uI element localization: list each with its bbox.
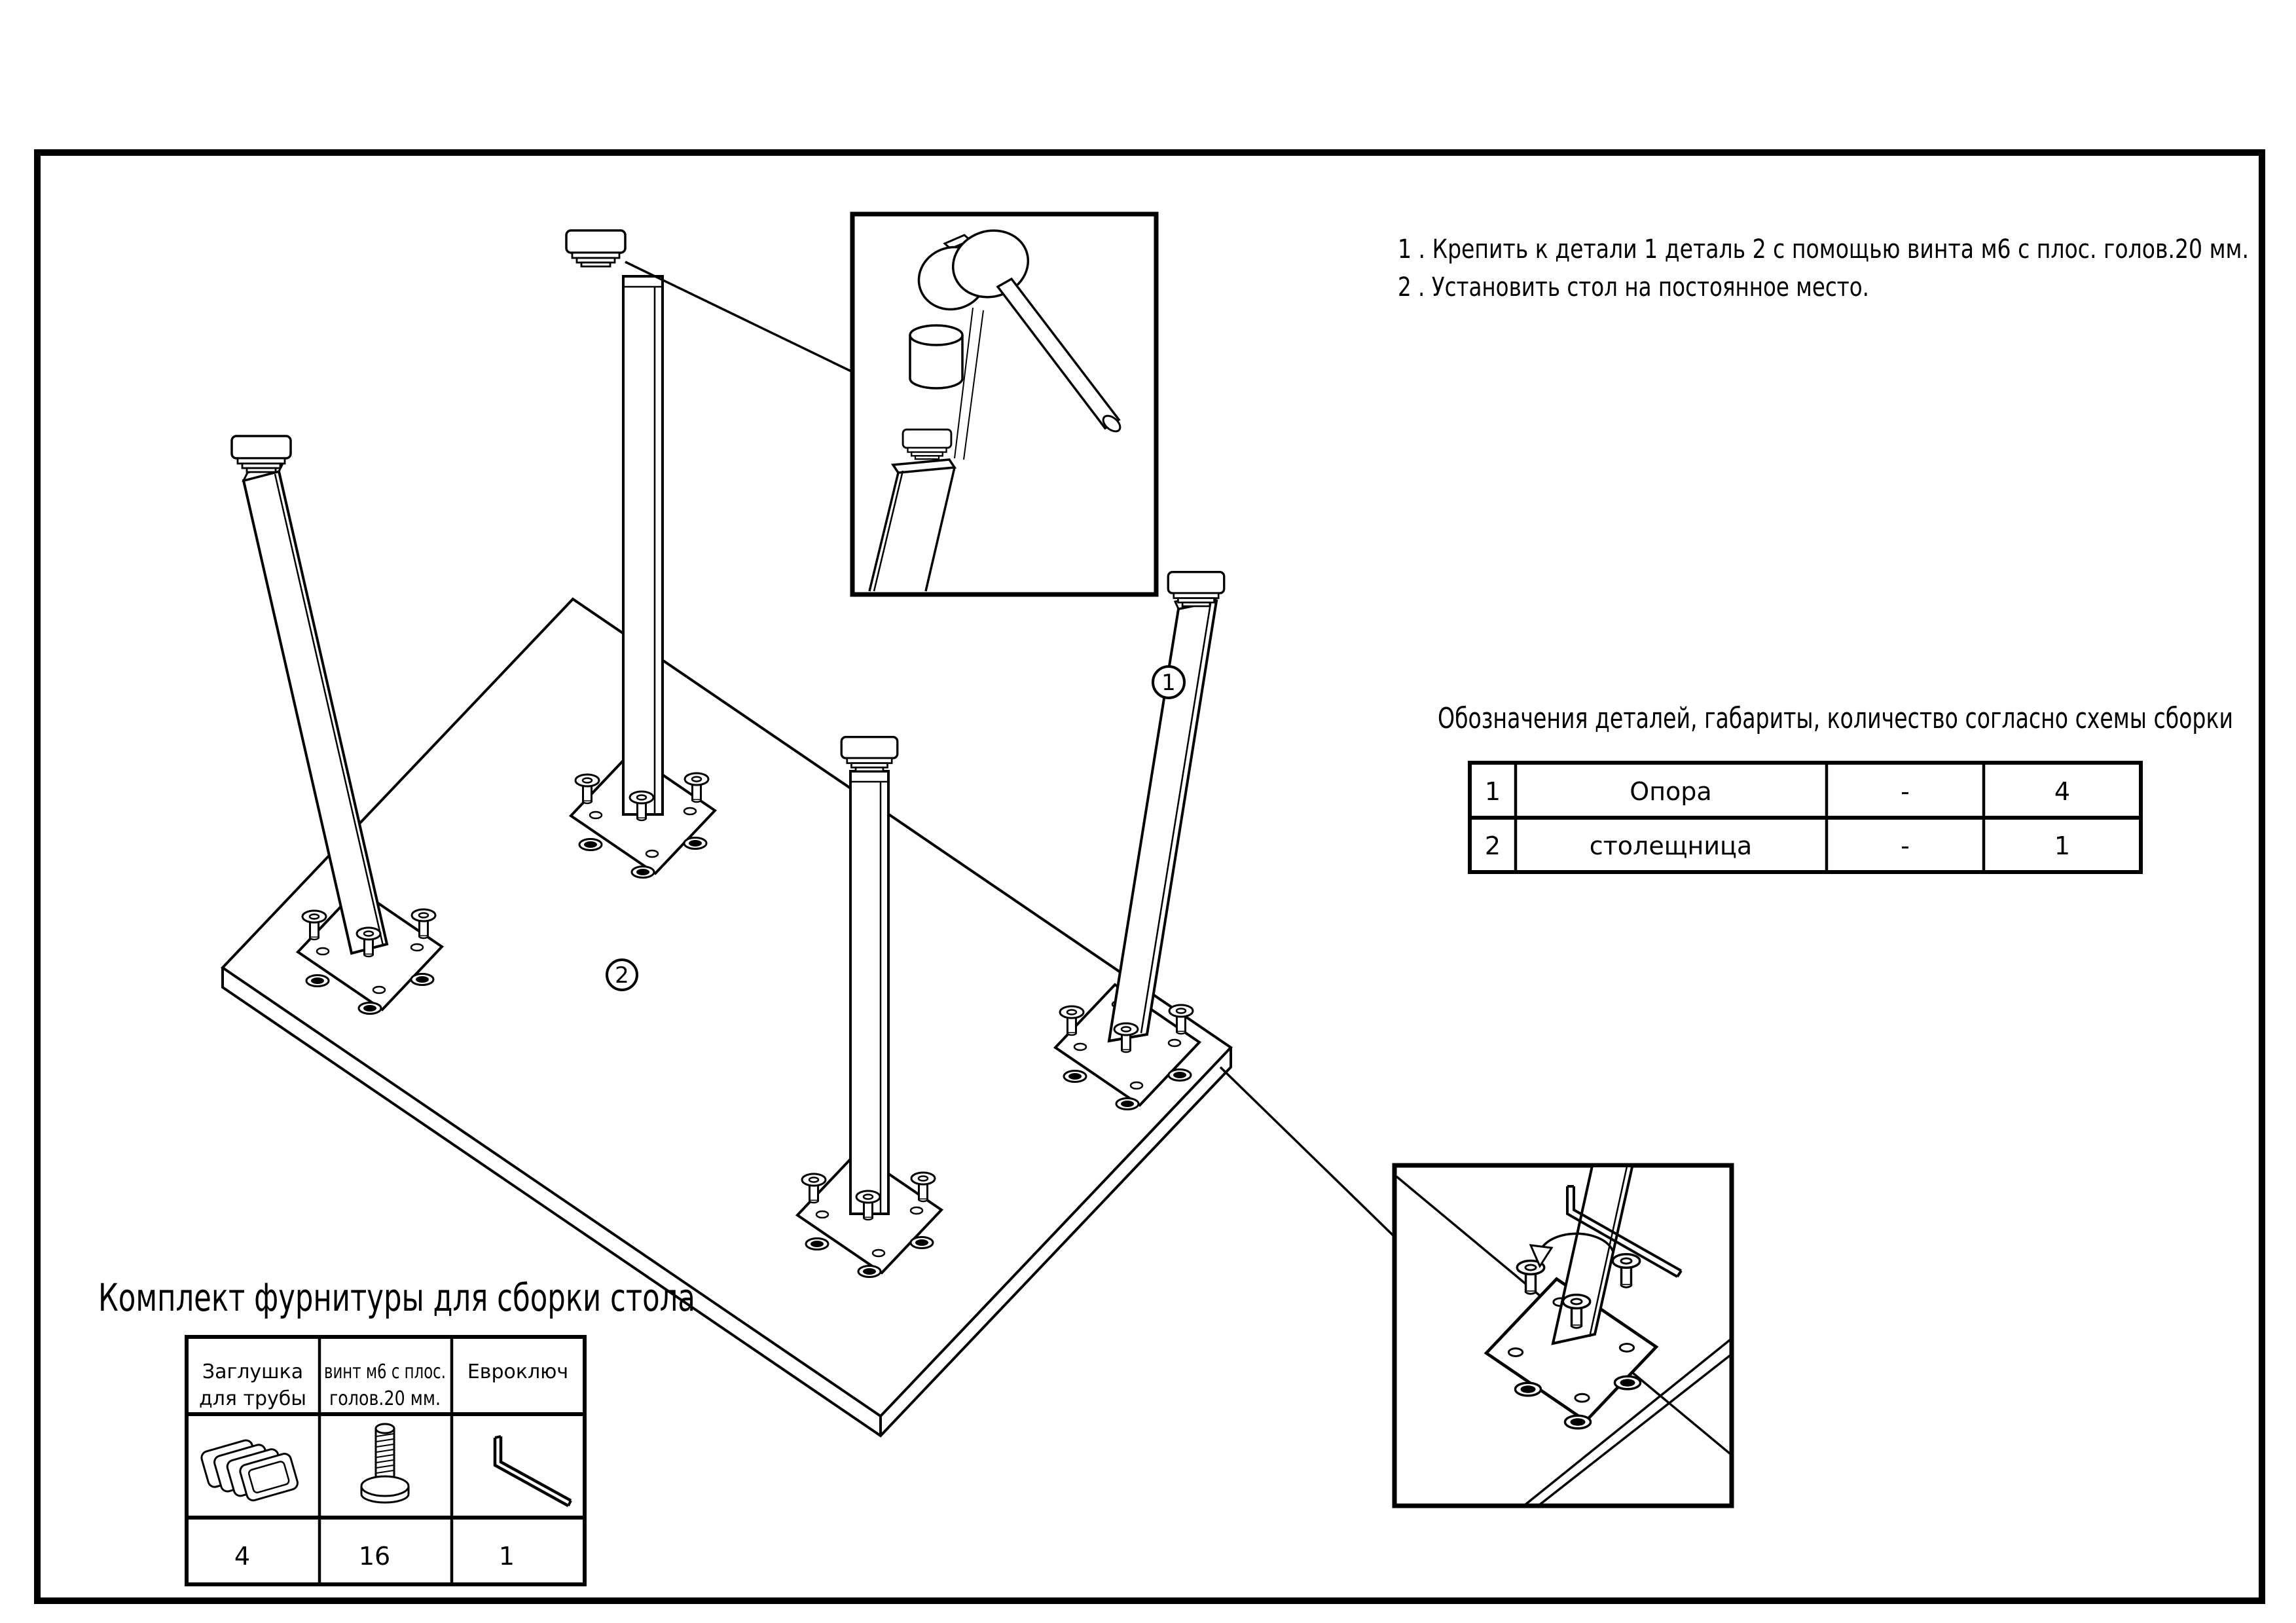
assembly-instruction-sheet: 1 2 xyxy=(0,0,2296,1623)
parts-table-title: Обозначения деталей, габариты, количеств… xyxy=(1438,702,2233,735)
part-label-1-text: 1 xyxy=(1161,670,1176,696)
leg-rear-vertical xyxy=(623,276,663,814)
part-label-1: 1 xyxy=(1153,666,1184,698)
detail-callout-screw-fastening xyxy=(1394,1152,1734,1506)
cell-dimensions: - xyxy=(1901,831,1910,860)
hw-qty-2: 16 xyxy=(359,1542,390,1571)
hardware-kit-title: Комплект фурнитуры для сборки стола xyxy=(98,1275,695,1320)
parts-table: Обозначения деталей, габариты, количеств… xyxy=(1438,702,2233,872)
hw-col2-line1: винт м6 с плос. xyxy=(324,1360,446,1383)
hw-qty-1: 4 xyxy=(234,1542,250,1571)
plug-cylinder-icon xyxy=(910,325,962,388)
assembly-drawing: 1 2 xyxy=(0,0,2296,1623)
cell-name: Опора xyxy=(1630,777,1711,806)
hw-col1-line2: для трубы xyxy=(199,1387,306,1410)
part-label-2-text: 2 xyxy=(615,962,629,989)
hw-col3-line1: Евроключ xyxy=(467,1360,568,1383)
cell-qty: 4 xyxy=(2054,777,2070,806)
instruction-line-1: 1 . Крепить к детали 1 деталь 2 с помощь… xyxy=(1398,234,2249,264)
part-label-2: 2 xyxy=(607,960,637,990)
leg-front-vertical xyxy=(850,771,888,1214)
instruction-line-2: 2 . Установить стол на постоянное место. xyxy=(1398,272,1869,302)
cell-num: 2 xyxy=(1485,831,1501,860)
cell-name: столещница xyxy=(1590,831,1752,860)
hw-col2-line2: голов.20 мм. xyxy=(329,1387,441,1410)
hw-col1-line1: Заглушка xyxy=(202,1360,303,1383)
cell-qty: 1 xyxy=(2054,831,2070,860)
cell-dimensions: - xyxy=(1901,777,1910,806)
detail-callout-plug-installation xyxy=(852,214,1156,594)
hw-qty-3: 1 xyxy=(499,1542,515,1571)
cell-num: 1 xyxy=(1485,777,1501,806)
